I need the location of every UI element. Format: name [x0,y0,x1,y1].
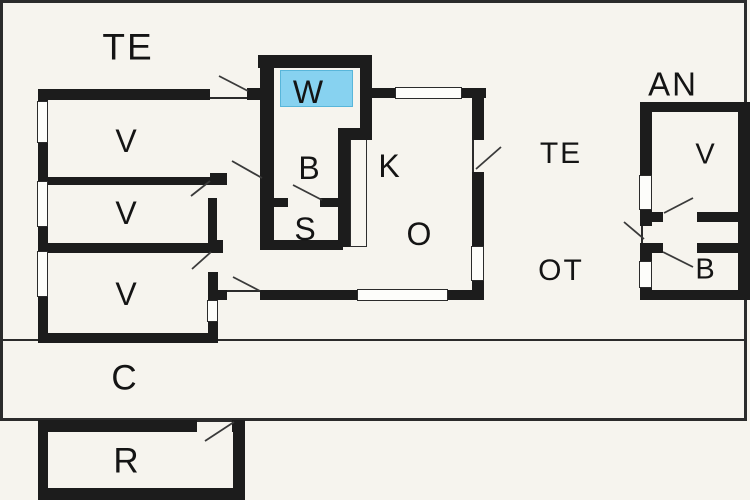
door-swing-line [233,277,260,291]
room-label-b: B [298,152,321,184]
room-label-r: R [113,444,140,479]
door-swing-line [624,222,644,239]
door-swing-line [192,252,211,269]
door-swing-line [293,185,322,200]
room-label-b-annex: B [695,256,716,285]
room-label-s: S [294,213,317,245]
room-label-o: O [407,218,434,250]
room-label-v2: V [115,197,138,229]
room-label-w: W [293,76,325,108]
floorplan-canvas: TEVVVWBSKOTEOTANVBCR [0,0,750,500]
room-label-te-top: TE [102,29,153,66]
room-label-c: C [111,361,138,396]
room-label-v1: V [115,125,138,157]
door-swing-line [664,198,693,213]
door-swing-line [219,76,248,91]
room-label-te-right: TE [540,139,582,169]
door-swing-line [476,147,501,169]
room-label-v3: V [115,278,138,310]
door-swing-line [191,181,210,196]
door-swing-line [205,422,234,441]
room-label-v-annex: V [695,141,716,170]
door-swing-line [232,161,262,178]
door-swing-line [663,252,693,267]
door-swings-layer [0,0,750,500]
room-label-an: AN [648,68,698,101]
room-label-ot: OT [538,256,584,286]
room-label-k: K [378,150,401,182]
